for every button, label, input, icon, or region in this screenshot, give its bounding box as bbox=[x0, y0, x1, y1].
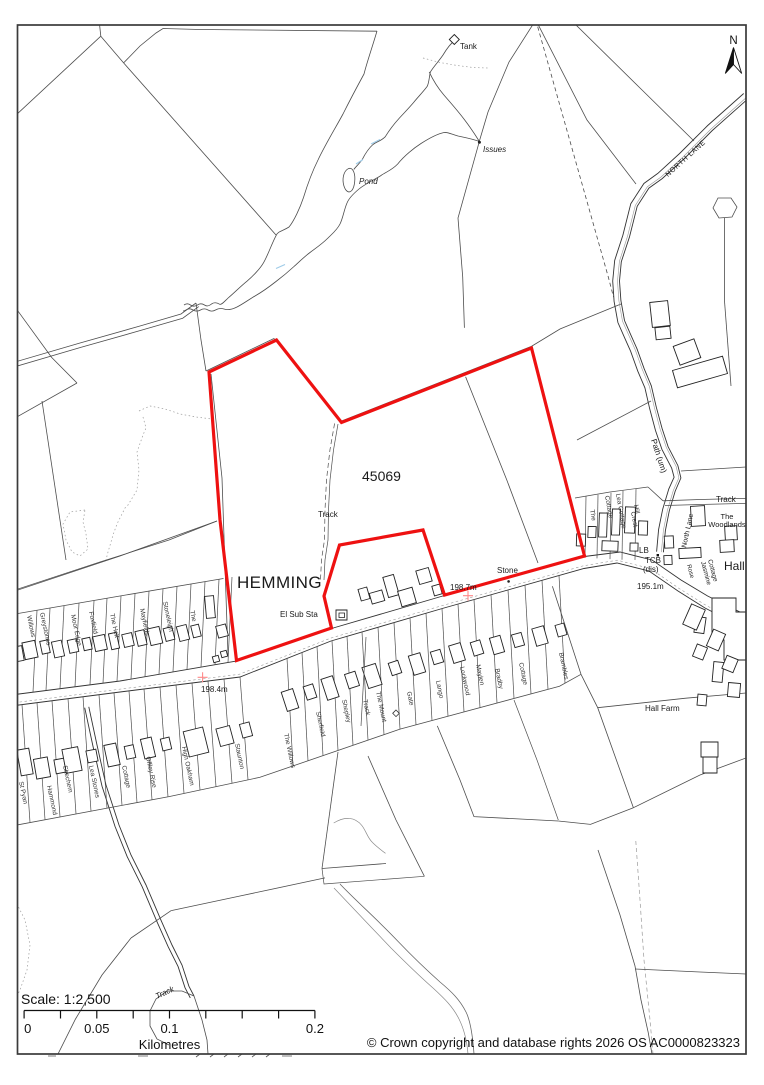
svg-text:Kilometres: Kilometres bbox=[139, 1037, 201, 1052]
svg-text:Hall Farm: Hall Farm bbox=[645, 704, 680, 713]
svg-text:0: 0 bbox=[24, 1021, 31, 1036]
svg-text:HEMMING: HEMMING bbox=[237, 573, 322, 592]
svg-text:LB: LB bbox=[639, 546, 649, 555]
svg-text:Tank: Tank bbox=[460, 42, 478, 51]
svg-text:© Crown copyright and database: © Crown copyright and database rights 20… bbox=[367, 1035, 740, 1050]
svg-text:195.1m: 195.1m bbox=[637, 582, 664, 591]
svg-text:Stone: Stone bbox=[497, 566, 518, 575]
svg-text:198.4m: 198.4m bbox=[201, 685, 228, 694]
svg-text:Pond: Pond bbox=[359, 177, 378, 186]
svg-text:Scale: 1:2,500: Scale: 1:2,500 bbox=[21, 991, 111, 1007]
svg-text:Hall: Hall bbox=[724, 559, 745, 573]
svg-text:45069: 45069 bbox=[362, 468, 401, 484]
svg-text:0.05: 0.05 bbox=[84, 1021, 109, 1036]
svg-text:Track: Track bbox=[318, 510, 339, 519]
svg-text:0.1: 0.1 bbox=[160, 1021, 178, 1036]
svg-text:Woodlands: Woodlands bbox=[708, 520, 746, 529]
svg-text:(dis): (dis) bbox=[643, 565, 659, 574]
svg-text:Track: Track bbox=[716, 495, 737, 504]
svg-text:TCB: TCB bbox=[645, 556, 661, 565]
svg-text:198.7m: 198.7m bbox=[450, 583, 477, 592]
svg-text:0.2: 0.2 bbox=[306, 1021, 324, 1036]
svg-text:N: N bbox=[729, 35, 737, 47]
svg-text:El Sub Sta: El Sub Sta bbox=[280, 610, 318, 619]
svg-text:Issues: Issues bbox=[483, 145, 506, 154]
